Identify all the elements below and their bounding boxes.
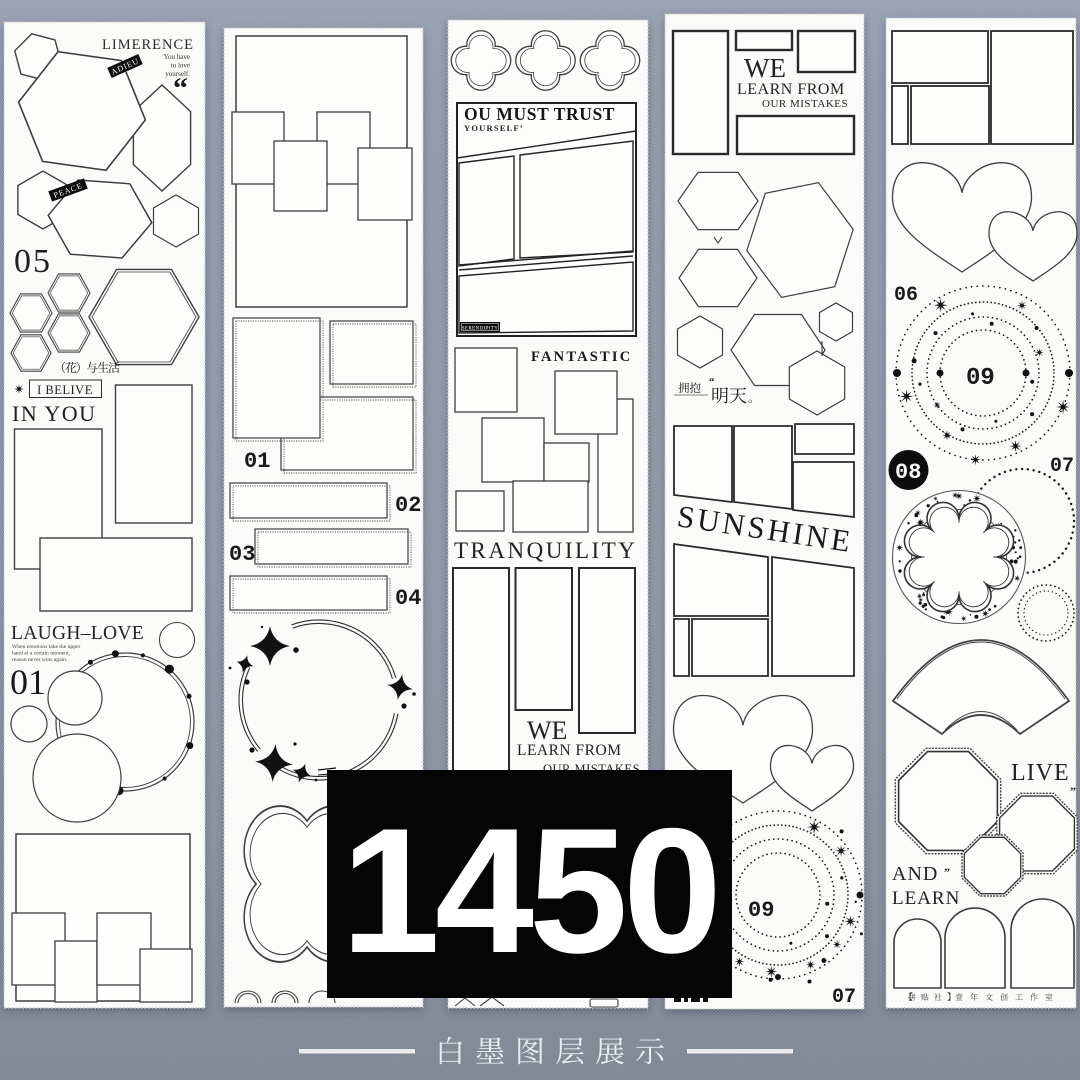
svg-text:LEARN: LEARN bbox=[892, 888, 960, 909]
svg-text:04: 04 bbox=[395, 586, 421, 611]
svg-text:01: 01 bbox=[10, 662, 46, 702]
svg-text:WE: WE bbox=[744, 53, 786, 83]
svg-text:IN YOU: IN YOU bbox=[12, 401, 97, 426]
svg-text:”: ” bbox=[944, 865, 950, 879]
svg-text:LIVE: LIVE bbox=[1011, 760, 1070, 786]
svg-text:1450: 1450 bbox=[341, 791, 717, 990]
svg-text:LIMERENCE: LIMERENCE bbox=[102, 37, 194, 53]
svg-text:hand at a certain moment,: hand at a certain moment, bbox=[12, 651, 71, 657]
svg-text:01: 01 bbox=[244, 449, 270, 474]
svg-text:”: ” bbox=[1070, 784, 1076, 798]
svg-text:TRANQUILITY: TRANQUILITY bbox=[454, 538, 637, 563]
svg-text:LEARN FROM: LEARN FROM bbox=[737, 81, 845, 98]
svg-text:07: 07 bbox=[832, 986, 856, 1009]
svg-text:“: “ bbox=[709, 376, 715, 388]
svg-text:08: 08 bbox=[895, 460, 921, 485]
svg-text:09: 09 bbox=[966, 365, 995, 392]
svg-text:When emotions take the upper: When emotions take the upper bbox=[12, 644, 80, 650]
svg-text:to love: to love bbox=[171, 62, 190, 70]
svg-text:OUR MISTAKES: OUR MISTAKES bbox=[762, 98, 848, 110]
svg-text:You have: You have bbox=[164, 53, 190, 61]
svg-text:03: 03 bbox=[229, 542, 255, 567]
svg-text:YOURSELF’: YOURSELF’ bbox=[464, 123, 524, 133]
svg-text:LAUGH–LOVE: LAUGH–LOVE bbox=[11, 623, 144, 644]
svg-text:06: 06 bbox=[894, 284, 918, 307]
svg-text:SERENDIPITY: SERENDIPITY bbox=[462, 327, 499, 332]
svg-text:I BELIVE: I BELIVE bbox=[37, 383, 93, 397]
svg-text:WE: WE bbox=[527, 716, 567, 745]
svg-text:02: 02 bbox=[395, 493, 421, 518]
svg-text:09: 09 bbox=[748, 898, 774, 923]
svg-text:07: 07 bbox=[1050, 455, 1074, 478]
svg-text:AND: AND bbox=[892, 863, 938, 885]
svg-text:05: 05 bbox=[14, 243, 52, 280]
svg-text:LEARN FROM: LEARN FROM bbox=[517, 742, 621, 759]
svg-text:FANTASTIC: FANTASTIC bbox=[531, 349, 632, 365]
svg-text:OU MUST TRUST: OU MUST TRUST bbox=[464, 104, 615, 124]
